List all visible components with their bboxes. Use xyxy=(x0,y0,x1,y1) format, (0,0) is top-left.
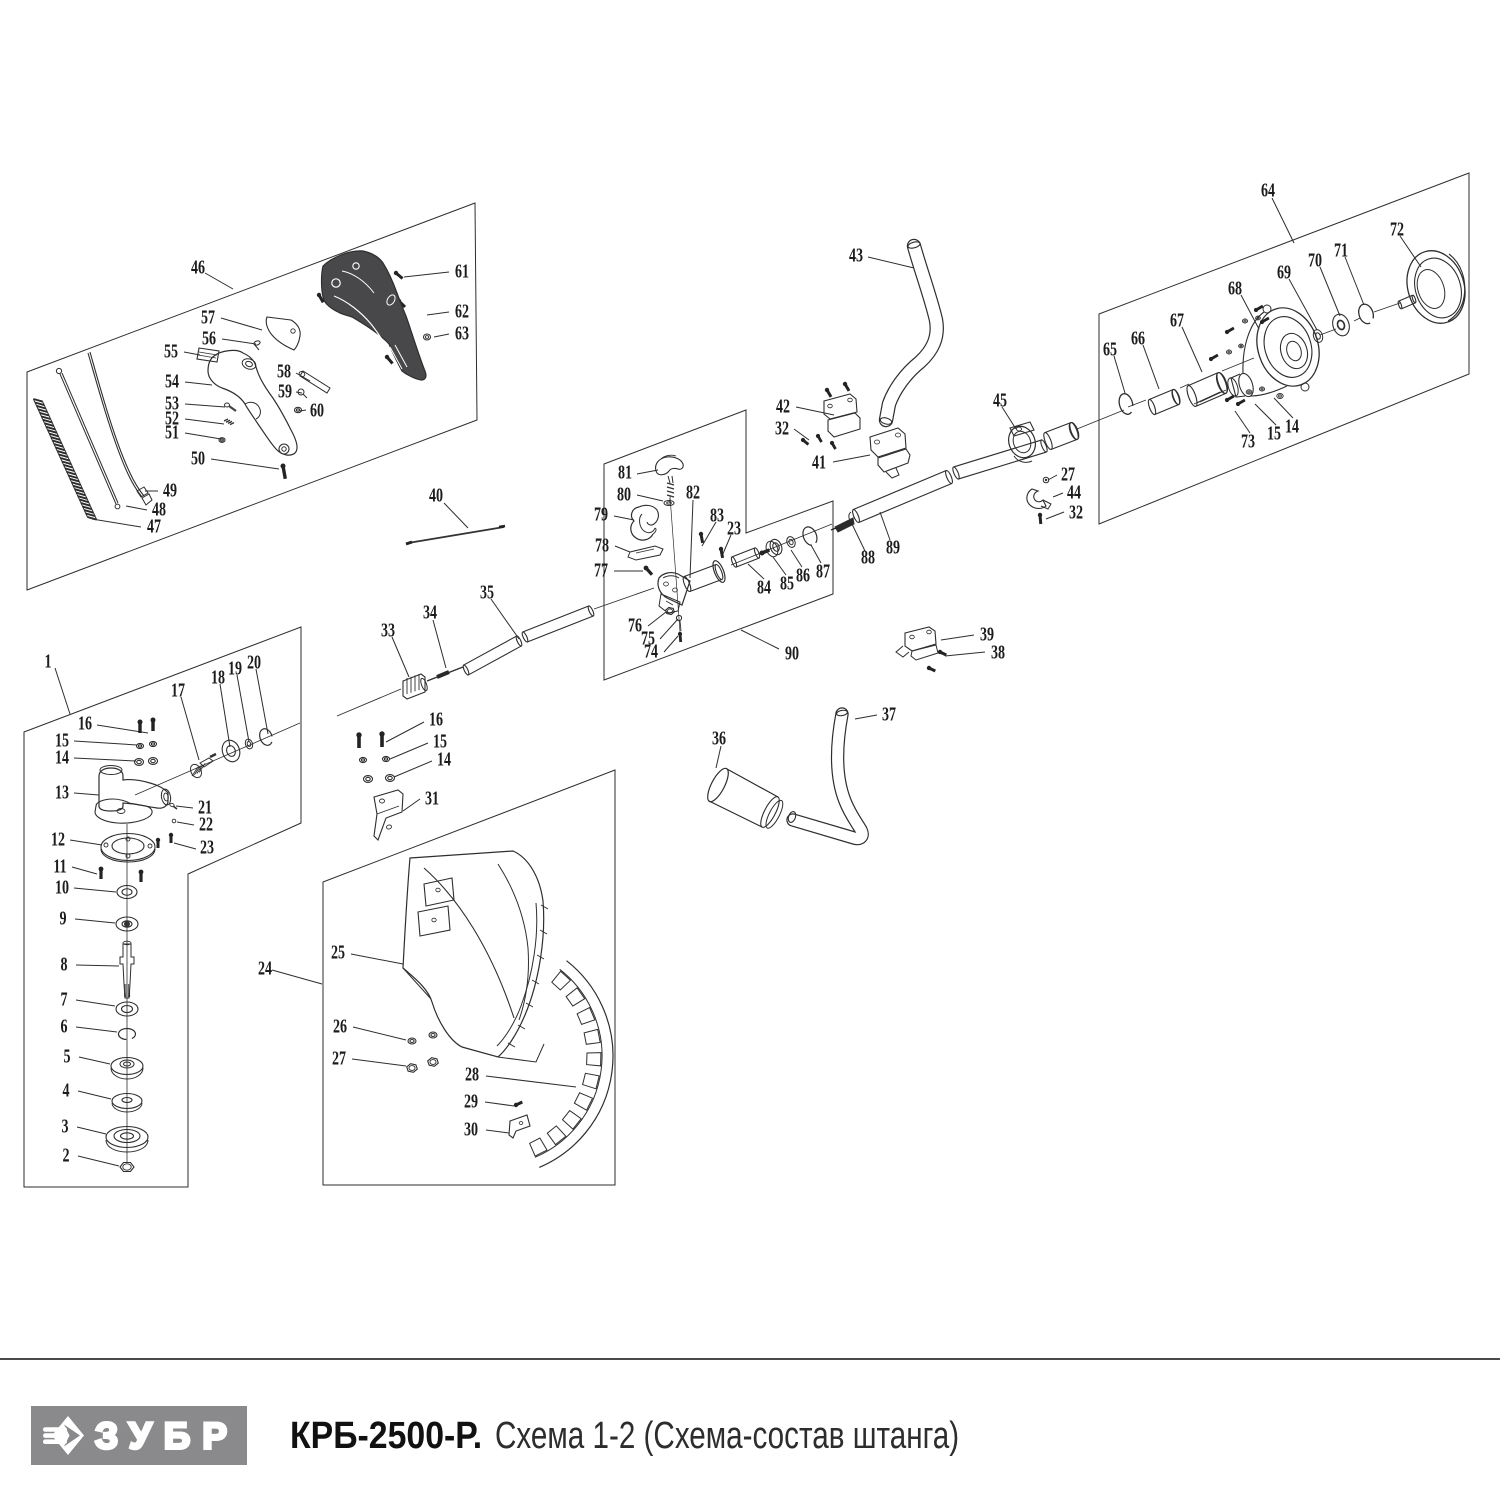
svg-text:16: 16 xyxy=(78,712,92,734)
svg-text:78: 78 xyxy=(595,534,609,556)
svg-text:40: 40 xyxy=(429,484,443,506)
svg-text:14: 14 xyxy=(1285,415,1299,437)
svg-text:81: 81 xyxy=(618,461,632,483)
svg-text:50: 50 xyxy=(191,447,205,469)
svg-text:56: 56 xyxy=(202,327,216,349)
svg-text:87: 87 xyxy=(816,560,830,582)
svg-text:42: 42 xyxy=(776,395,790,417)
svg-text:22: 22 xyxy=(199,813,213,835)
svg-text:74: 74 xyxy=(644,640,658,662)
svg-text:12: 12 xyxy=(51,828,65,850)
svg-text:24: 24 xyxy=(258,957,272,979)
svg-text:79: 79 xyxy=(594,503,608,525)
svg-text:4: 4 xyxy=(62,1079,69,1101)
svg-text:66: 66 xyxy=(1131,327,1145,349)
svg-text:29: 29 xyxy=(464,1090,478,1112)
svg-text:23: 23 xyxy=(200,836,214,858)
svg-text:27: 27 xyxy=(332,1047,346,1069)
svg-text:43: 43 xyxy=(849,244,863,266)
svg-text:60: 60 xyxy=(310,399,324,421)
svg-text:6: 6 xyxy=(60,1015,67,1037)
svg-text:83: 83 xyxy=(710,504,724,526)
svg-text:41: 41 xyxy=(812,451,826,473)
svg-text:33: 33 xyxy=(381,619,395,641)
svg-text:51: 51 xyxy=(165,421,179,443)
svg-text:ЗУБР: ЗУБР xyxy=(95,1416,239,1457)
svg-text:89: 89 xyxy=(886,536,900,558)
svg-text:31: 31 xyxy=(425,787,439,809)
svg-text:82: 82 xyxy=(686,481,700,503)
svg-text:26: 26 xyxy=(333,1015,347,1037)
svg-text:85: 85 xyxy=(780,572,794,594)
svg-text:65: 65 xyxy=(1103,338,1117,360)
svg-text:69: 69 xyxy=(1277,261,1291,283)
svg-text:28: 28 xyxy=(465,1063,479,1085)
svg-text:44: 44 xyxy=(1067,481,1081,503)
svg-text:55: 55 xyxy=(164,340,178,362)
svg-text:7: 7 xyxy=(60,988,67,1010)
svg-text:38: 38 xyxy=(991,641,1005,663)
svg-text:45: 45 xyxy=(993,389,1007,411)
svg-text:68: 68 xyxy=(1228,277,1242,299)
svg-text:86: 86 xyxy=(796,564,810,586)
svg-text:84: 84 xyxy=(757,576,771,598)
svg-text:46: 46 xyxy=(191,256,205,278)
svg-text:14: 14 xyxy=(437,748,451,770)
svg-text:23: 23 xyxy=(727,517,741,539)
svg-text:34: 34 xyxy=(423,601,437,623)
svg-text:25: 25 xyxy=(331,941,345,963)
svg-text:63: 63 xyxy=(455,322,469,344)
svg-text:47: 47 xyxy=(147,515,161,537)
svg-text:90: 90 xyxy=(785,642,799,664)
svg-text:73: 73 xyxy=(1241,430,1255,452)
svg-text:61: 61 xyxy=(455,260,469,282)
svg-text:54: 54 xyxy=(165,370,179,392)
svg-text:67: 67 xyxy=(1170,309,1184,331)
svg-text:1: 1 xyxy=(44,650,51,672)
svg-text:88: 88 xyxy=(861,546,875,568)
svg-text:11: 11 xyxy=(53,855,66,877)
svg-text:70: 70 xyxy=(1308,249,1322,271)
svg-text:17: 17 xyxy=(171,679,185,701)
svg-text:80: 80 xyxy=(617,483,631,505)
svg-text:59: 59 xyxy=(278,380,292,402)
svg-text:30: 30 xyxy=(464,1118,478,1140)
svg-text:32: 32 xyxy=(1069,501,1083,523)
svg-text:35: 35 xyxy=(480,581,494,603)
svg-text:37: 37 xyxy=(882,703,896,725)
svg-text:62: 62 xyxy=(455,300,469,322)
svg-text:77: 77 xyxy=(594,559,608,581)
svg-text:16: 16 xyxy=(429,708,443,730)
svg-text:5: 5 xyxy=(63,1045,70,1067)
svg-text:36: 36 xyxy=(712,727,726,749)
svg-text:76: 76 xyxy=(628,614,642,636)
svg-text:20: 20 xyxy=(247,651,261,673)
svg-text:3: 3 xyxy=(61,1115,68,1137)
svg-text:8: 8 xyxy=(60,953,67,975)
svg-text:15: 15 xyxy=(1267,422,1281,444)
svg-text:57: 57 xyxy=(201,306,215,328)
svg-text:18: 18 xyxy=(211,666,225,688)
svg-text:10: 10 xyxy=(55,876,69,898)
svg-text:14: 14 xyxy=(55,746,69,768)
svg-text:9: 9 xyxy=(59,907,66,929)
svg-text:71: 71 xyxy=(1334,239,1348,261)
svg-text:19: 19 xyxy=(228,657,242,679)
svg-text:72: 72 xyxy=(1390,218,1404,240)
svg-text:32: 32 xyxy=(775,417,789,439)
svg-text:13: 13 xyxy=(55,781,69,803)
svg-text:2: 2 xyxy=(62,1144,69,1166)
svg-text:58: 58 xyxy=(277,360,291,382)
svg-text:64: 64 xyxy=(1261,179,1275,201)
